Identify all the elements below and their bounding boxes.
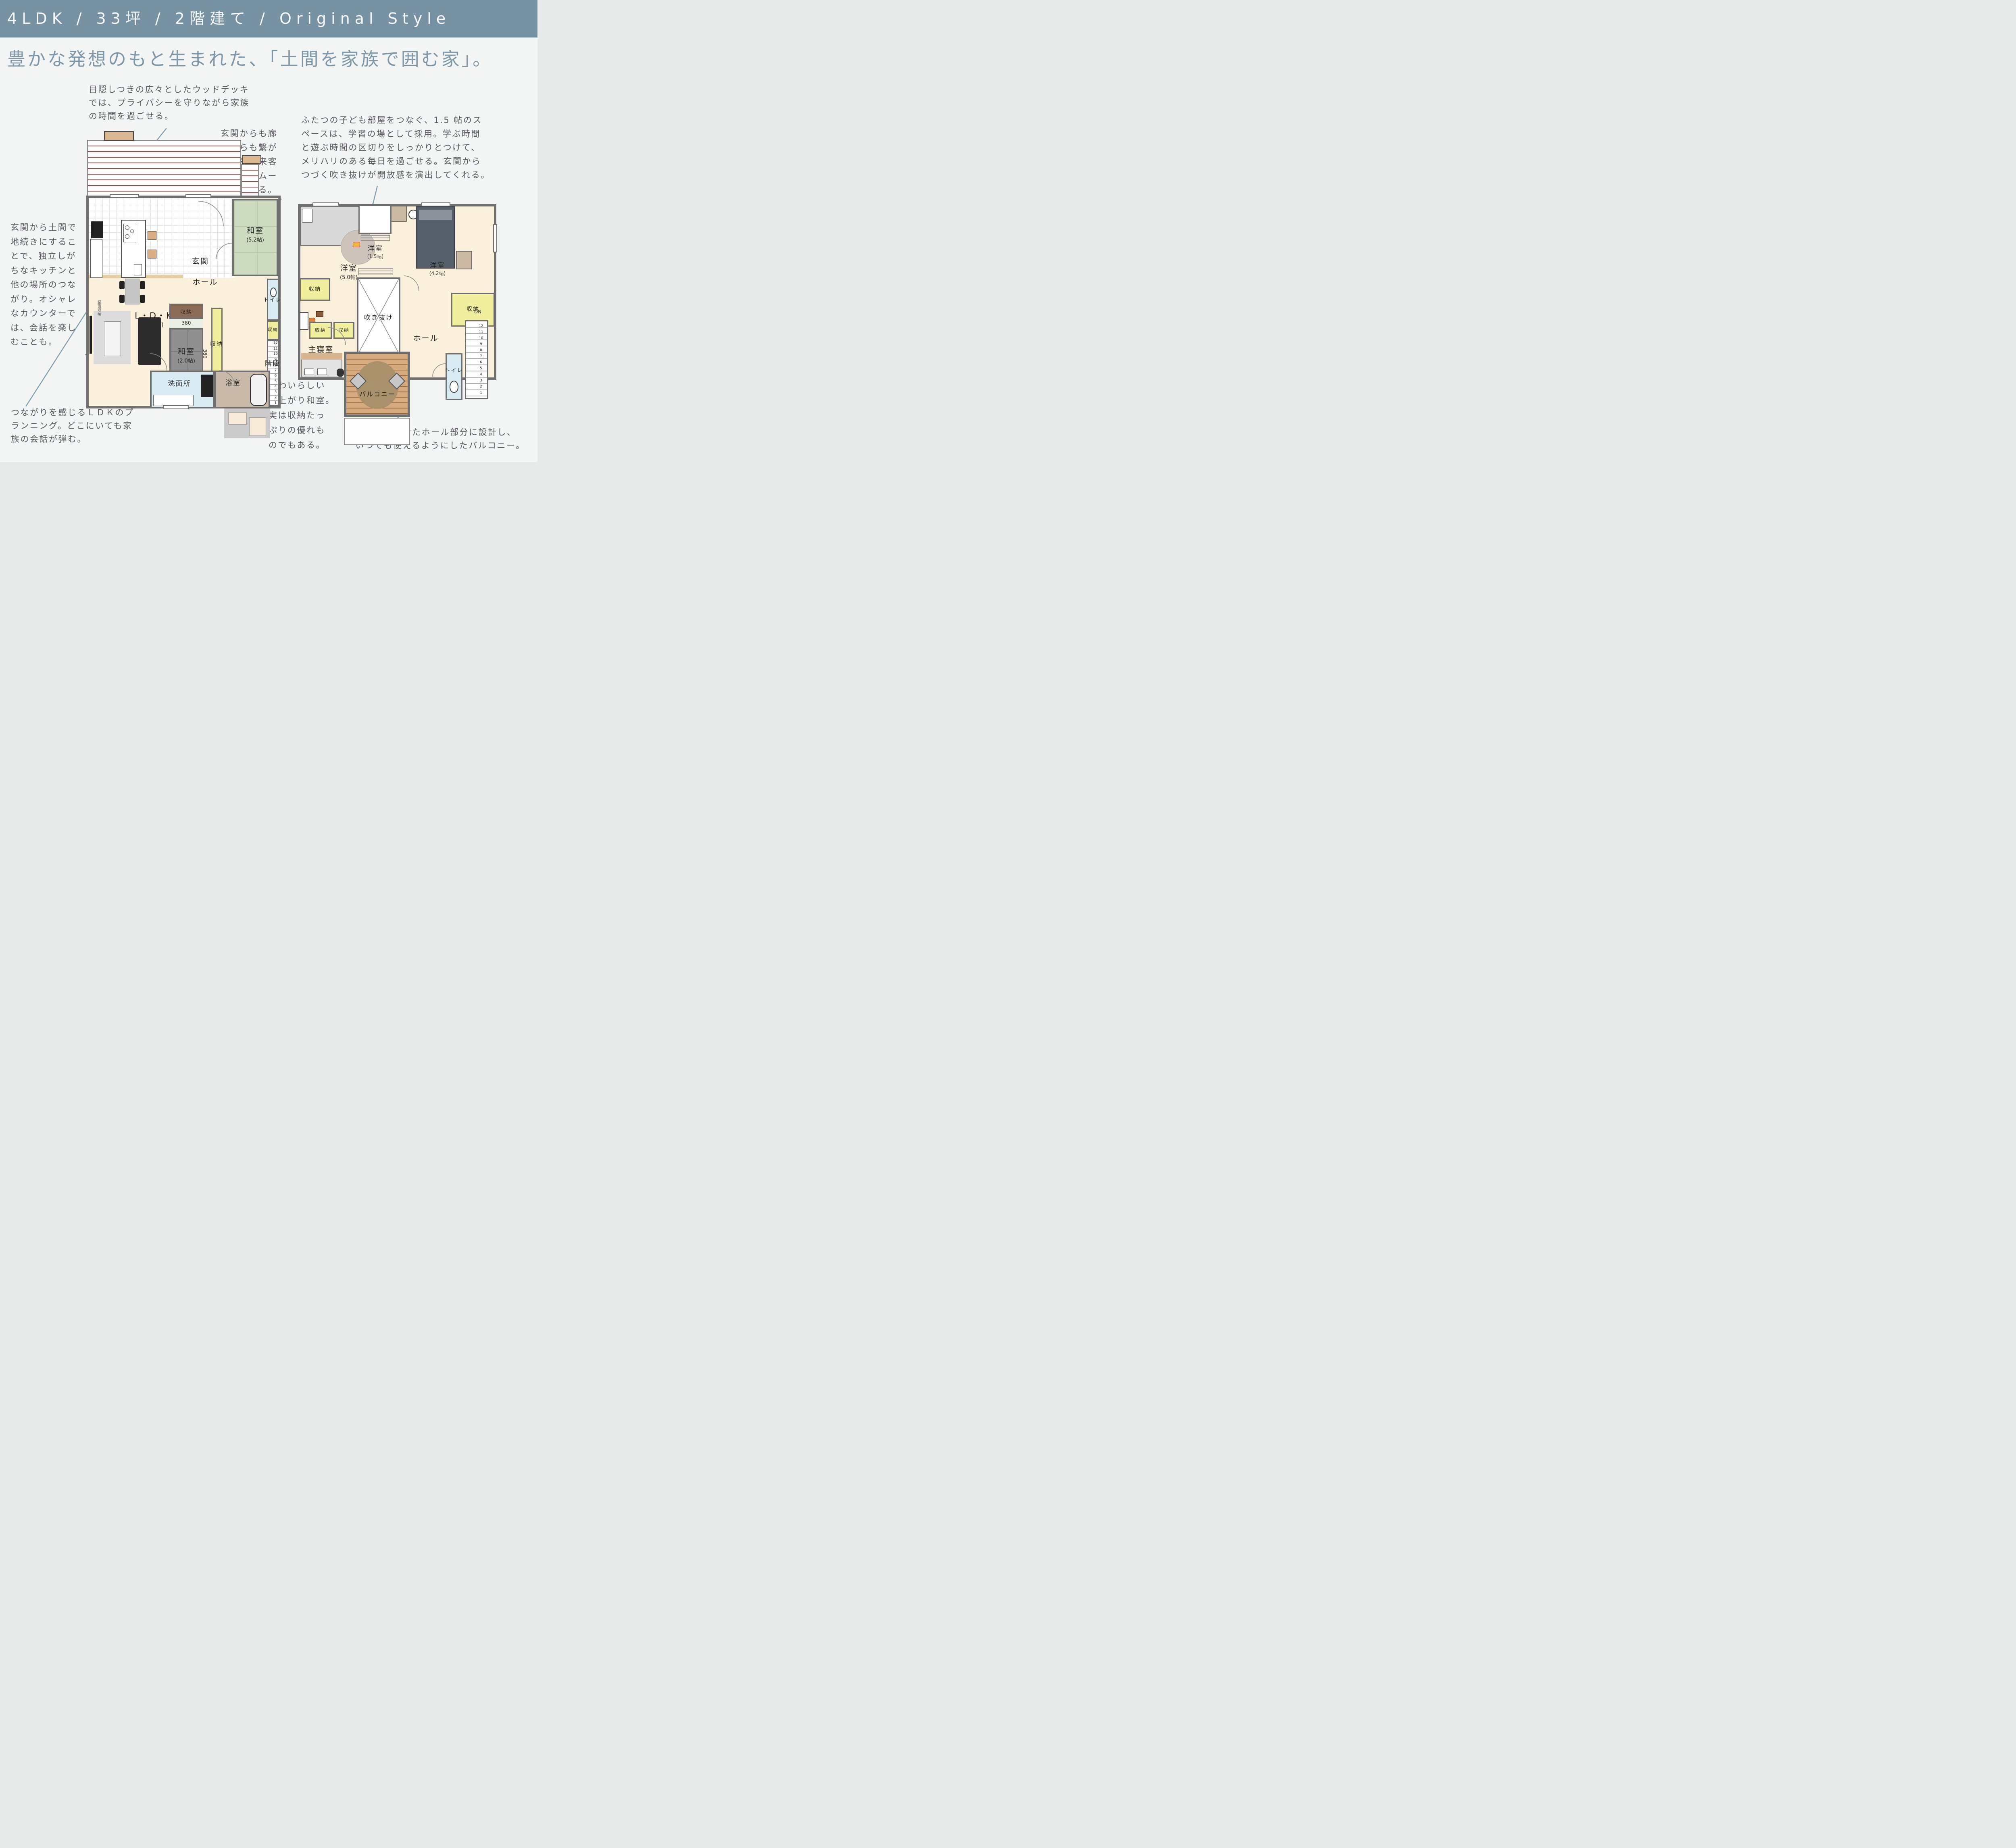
storage-small-label: 収納 [264, 326, 282, 333]
wood-deck [87, 140, 241, 197]
burner-icon [125, 234, 129, 239]
side-table [316, 311, 323, 317]
window [421, 202, 450, 206]
coffee-table [104, 321, 121, 356]
header-text: 4LDK / 33坪 / 2階建て / Original Style [7, 0, 450, 38]
storage-brown-label: 収納 [169, 308, 203, 315]
room-name: 和室 [169, 346, 203, 356]
deck-fence [104, 131, 134, 141]
burner-icon [130, 229, 134, 233]
wall-storage-label: 壁面収納 [96, 295, 102, 321]
toilet1-label: トイレ [256, 296, 289, 303]
storage-right-label: 収納 [205, 340, 228, 348]
washer [201, 375, 213, 397]
yoshitsu15-label: 洋室 (1.5帖) [356, 243, 395, 260]
note-doma: 玄関から土間で 地続きにするこ とで、独立しが ちなキッチンと 他の場所のつな … [10, 221, 77, 350]
pillow [317, 369, 327, 375]
sink-icon [134, 264, 142, 275]
room-size: (1.5帖) [356, 253, 395, 260]
kitchen-cabinet [90, 239, 102, 278]
note-wood-deck: 目隠しつきの広々としたウッドデッキ では、プライバシーを守りながら家族 の時間を… [89, 83, 250, 123]
floor1-plan: 和室 (5.2帖) 玄関 ホール L・D・K (8.5帖) 収納 380 和室 … [86, 135, 281, 440]
window [163, 405, 189, 409]
window [312, 202, 339, 206]
hall-label: ホール [187, 276, 223, 287]
yoshitsu42-label: 洋室 (4.2帖) [417, 260, 458, 277]
storage-b-label: 収納 [309, 327, 332, 333]
pillow [302, 209, 312, 223]
counter-stool [148, 250, 156, 258]
window [493, 224, 497, 252]
stairs2-numbers: 12 11 10 9 8 7 6 5 4 3 2 1 [477, 323, 485, 396]
washitsu-2-0-label: 和室 (2.0帖) [169, 346, 203, 364]
burner-icon [125, 225, 129, 230]
void-label: 吹き抜け [358, 312, 399, 322]
desk [456, 251, 472, 269]
storage-a-label: 収納 [300, 285, 330, 292]
roof-outline [344, 418, 410, 445]
washitsu-5-2-label: 和室 (5.2帖) [232, 225, 278, 243]
study-desk [300, 312, 308, 330]
refrigerator [91, 221, 103, 238]
hall2-label: ホール [407, 332, 445, 343]
room-size: (5.2帖) [232, 235, 278, 243]
vanity [153, 395, 194, 406]
page-title: 豊かな発想のもと生まれた、「土間を家族で囲む家」。 [7, 44, 493, 71]
page: 4LDK / 33坪 / 2階建て / Original Style 豊かな発想… [0, 0, 537, 462]
room-name: 洋室 [356, 243, 395, 253]
porch-item [249, 417, 266, 436]
storage-c-label: 収納 [333, 327, 354, 333]
tv-icon [90, 316, 92, 354]
room-name: 洋室 [417, 260, 458, 270]
pillow [419, 210, 452, 220]
room-name: 主寝室 [302, 344, 340, 354]
dim-380-h: 380 [169, 320, 203, 326]
floor2-plan: 洋室 (5.0帖) 収納 収納 収納 主寝室 (6.0帖) 洋室 (1.5帖) … [298, 204, 496, 447]
dining-table [125, 279, 140, 304]
senmenjo-label: 洗面所 [157, 378, 202, 388]
window [185, 194, 211, 198]
header-bar: 4LDK / 33坪 / 2階建て / Original Style [0, 0, 537, 38]
pillow [304, 369, 314, 375]
bathroom-label: 浴室 [219, 377, 248, 387]
balcony-label: バルコニー [356, 389, 399, 398]
plant-icon [337, 369, 344, 377]
room-size: (2.0帖) [169, 356, 203, 364]
note-kids-room: ふたつの子ども部屋をつなぐ、1.5 帖のス ペースは、学習の場として採用。学ぶ時… [301, 113, 490, 182]
wood-deck-step [241, 164, 259, 197]
dining-chair [119, 281, 125, 289]
dining-chair [140, 281, 145, 289]
room-name: 和室 [232, 225, 278, 235]
deck-fence [242, 155, 261, 164]
void-upper [358, 205, 392, 234]
genkan-label: 玄関 [183, 255, 218, 266]
counter-stool [148, 231, 156, 240]
dim-380-v: 380 [202, 349, 208, 357]
bathtub-icon [250, 374, 267, 406]
dn-label: DN [470, 309, 486, 315]
porch-item [228, 413, 247, 425]
stairs1-numbers: 12 11 10 9 8 7 6 5 4 3 2 1 [273, 341, 279, 406]
dining-chair [119, 295, 125, 303]
dining-chair [140, 295, 145, 303]
toilet-icon [450, 381, 458, 393]
sofa [138, 317, 161, 365]
study-counter [358, 268, 393, 275]
balustrade [361, 235, 390, 241]
toilet2-room [446, 353, 462, 400]
bed-blanket [301, 353, 342, 360]
window [110, 194, 139, 198]
room-size: (4.2帖) [417, 270, 458, 277]
